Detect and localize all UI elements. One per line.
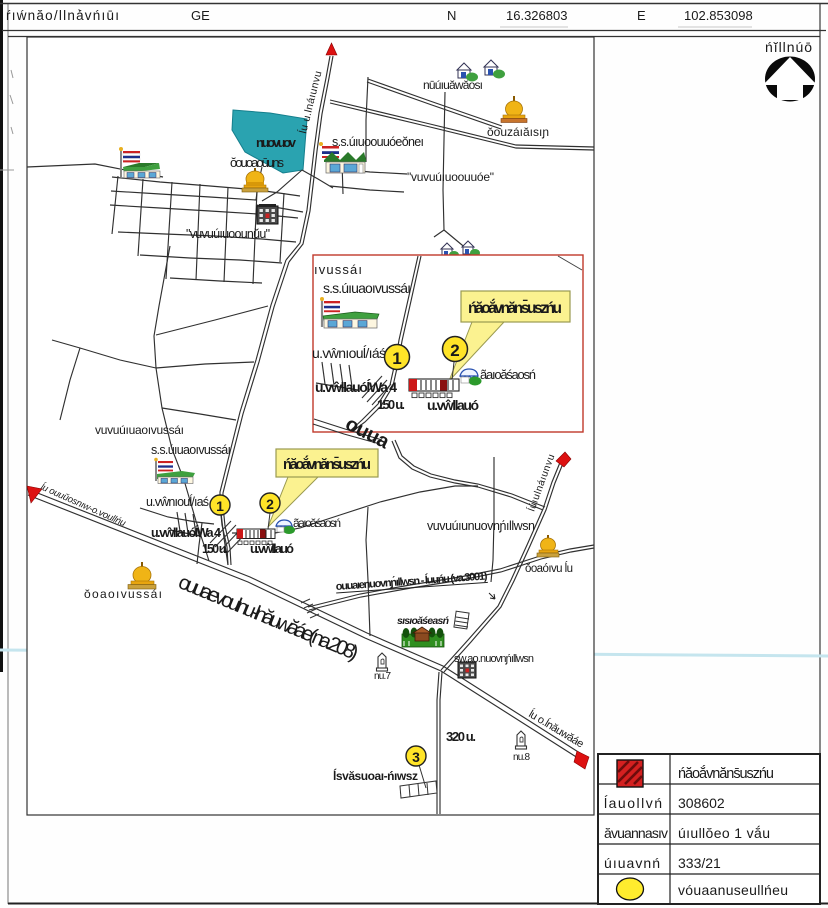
svg-text:ãaıoăśaosń: ãaıoăśaosń bbox=[293, 516, 341, 530]
svg-text:nuovuov: nuovuov bbox=[256, 135, 297, 150]
svg-text:2: 2 bbox=[266, 496, 274, 512]
svg-text:u.vŵllauóĺWa 4: u.vŵllauóĺWa 4 bbox=[315, 378, 397, 395]
svg-text:320 u.: 320 u. bbox=[446, 729, 476, 744]
svg-text:s.s.úıuoouuóeŏnеı: s.s.úıuoouuóeŏnеı bbox=[332, 135, 424, 149]
svg-text:1: 1 bbox=[216, 498, 224, 514]
svg-text:2: 2 bbox=[450, 341, 459, 360]
svg-text:ãaıoăśaosń: ãaıoăśaosń bbox=[480, 367, 536, 382]
svg-text:150 u.: 150 u. bbox=[377, 397, 405, 412]
svg-text:ăvuannasıv: ăvuannasıv bbox=[604, 825, 668, 841]
svg-text:vóuaanusеullńеu: vóuaanusеullńеu bbox=[678, 882, 788, 898]
svg-text:16.326803: 16.326803 bbox=[506, 8, 567, 23]
svg-text:úıullŏеo 1 vắu: úıullŏеo 1 vắu bbox=[678, 825, 770, 841]
svg-text:vuvuúıunuovnɲ́ıllwsn: vuvuúıunuovnɲ́ıllwsn bbox=[427, 519, 535, 533]
svg-text:s.s.úıuaoıvussáı: s.s.úıuaoıvussáı bbox=[151, 443, 231, 457]
svg-text:"vuvuúıuoouuóе": "vuvuúıuoouuóе" bbox=[407, 170, 494, 184]
svg-text:ŕıẃnăo/llná̀vńıūı: ŕıẃnăo/llná̀vńıūı bbox=[6, 8, 119, 23]
svg-text:ńăoắvnăns̄uszńu: ńăoắvnăns̄uszńu bbox=[468, 299, 562, 317]
svg-text:E: E bbox=[637, 8, 646, 23]
svg-text:u.vŵllauó: u.vŵllauó bbox=[427, 397, 479, 413]
svg-text:ńĭllnúō: ńĭllnúō bbox=[765, 39, 812, 55]
svg-text:u.vŵnıouĺ/ıaś: u.vŵnıouĺ/ıaś bbox=[146, 494, 209, 509]
svg-text:vuvuúıuaoıvussáı: vuvuúıuaoıvussáı bbox=[95, 423, 184, 437]
svg-text:ŏouoaoūuns: ŏouoaoūuns bbox=[230, 155, 285, 170]
svg-text:N: N bbox=[447, 8, 456, 23]
svg-text:u.vŵnıouĺ/ıáś: u.vŵnıouĺ/ıáś bbox=[312, 344, 386, 361]
svg-text:308602: 308602 bbox=[678, 795, 725, 811]
svg-text:ńăoắvnăns̄uszńu: ńăoắvnăns̄uszńu bbox=[678, 765, 774, 782]
svg-text:333/21: 333/21 bbox=[678, 855, 721, 871]
svg-text:"vuvuúıuoounŭu": "vuvuúıuoounŭu" bbox=[186, 227, 270, 241]
svg-text:ĺsvăsuoaı-ńıwsz: ĺsvăsuoaı-ńıwsz bbox=[333, 768, 418, 783]
svg-text:ıvussáı: ıvussáı bbox=[314, 262, 362, 277]
svg-text:ŏouzáıăısıɲ: ŏouzáıăısıɲ bbox=[487, 125, 549, 139]
svg-text:ĺauollvń: ĺauollvń bbox=[604, 794, 662, 811]
svg-text:ŏoaóıvu ĺu: ŏoaóıvu ĺu bbox=[525, 562, 573, 575]
svg-text:sısıoăśеаsń: sısıoăśеаsń bbox=[397, 615, 449, 627]
svg-text:150 u.: 150 u. bbox=[202, 542, 228, 556]
svg-text:nu.7: nu.7 bbox=[374, 671, 391, 682]
svg-text:u.vŵllauóĺWa 4: u.vŵllauóĺWa 4 bbox=[151, 525, 221, 540]
svg-text:GE: GE bbox=[191, 8, 210, 23]
svg-text:102.853098: 102.853098 bbox=[684, 8, 753, 23]
svg-text:1: 1 bbox=[392, 349, 401, 368]
svg-text:nu.8: nu.8 bbox=[513, 752, 530, 763]
svg-text:úıuavnń: úıuavnń bbox=[604, 855, 660, 871]
svg-text:s.s.úıuaoıvussáı: s.s.úıuaoıvussáı bbox=[323, 280, 411, 296]
svg-text:ńăoắvnăns̄uszńu: ńăoắvnăns̄uszńu bbox=[283, 455, 371, 473]
svg-text:3: 3 bbox=[412, 749, 420, 765]
